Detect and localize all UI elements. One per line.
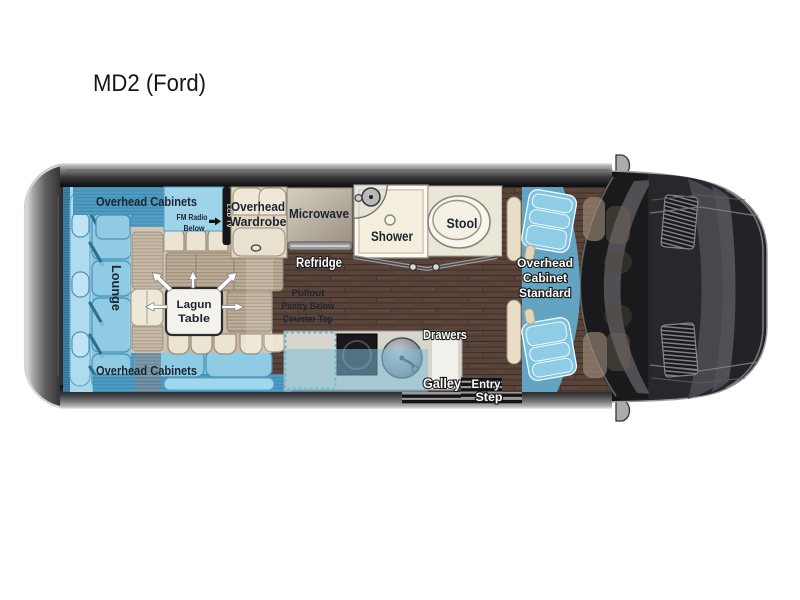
svg-text:Overhead: Overhead <box>231 200 285 214</box>
svg-text:Refridge: Refridge <box>296 255 342 270</box>
svg-text:Step: Step <box>476 390 503 404</box>
svg-text:Microwave: Microwave <box>289 206 349 221</box>
svg-text:Pullout: Pullout <box>292 288 326 299</box>
svg-text:Wardrobe: Wardrobe <box>230 215 287 229</box>
svg-text:Lounge: Lounge <box>109 265 123 311</box>
svg-text:Entry: Entry <box>472 377 501 391</box>
svg-text:Galley: Galley <box>423 376 461 391</box>
svg-text:Below: Below <box>184 224 206 233</box>
svg-text:Standard: Standard <box>519 288 571 300</box>
svg-text:Counter Top: Counter Top <box>283 314 333 325</box>
svg-text:Overhead: Overhead <box>517 258 573 270</box>
svg-text:FM Radio: FM Radio <box>177 213 208 222</box>
svg-text:Table: Table <box>178 313 210 325</box>
svg-text:Overhead Cabinets: Overhead Cabinets <box>96 363 197 378</box>
svg-text:Drawers: Drawers <box>423 327 467 342</box>
svg-text:Stool: Stool <box>447 216 478 231</box>
svg-text:Overhead Cabinets: Overhead Cabinets <box>96 194 197 209</box>
svg-text:Pantry Below: Pantry Below <box>282 301 336 312</box>
svg-text:Shower: Shower <box>371 229 414 244</box>
svg-text:Lagun: Lagun <box>177 299 212 311</box>
svg-text:Cabinet: Cabinet <box>523 273 567 285</box>
svg-text:MD2 (Ford): MD2 (Ford) <box>93 70 206 97</box>
